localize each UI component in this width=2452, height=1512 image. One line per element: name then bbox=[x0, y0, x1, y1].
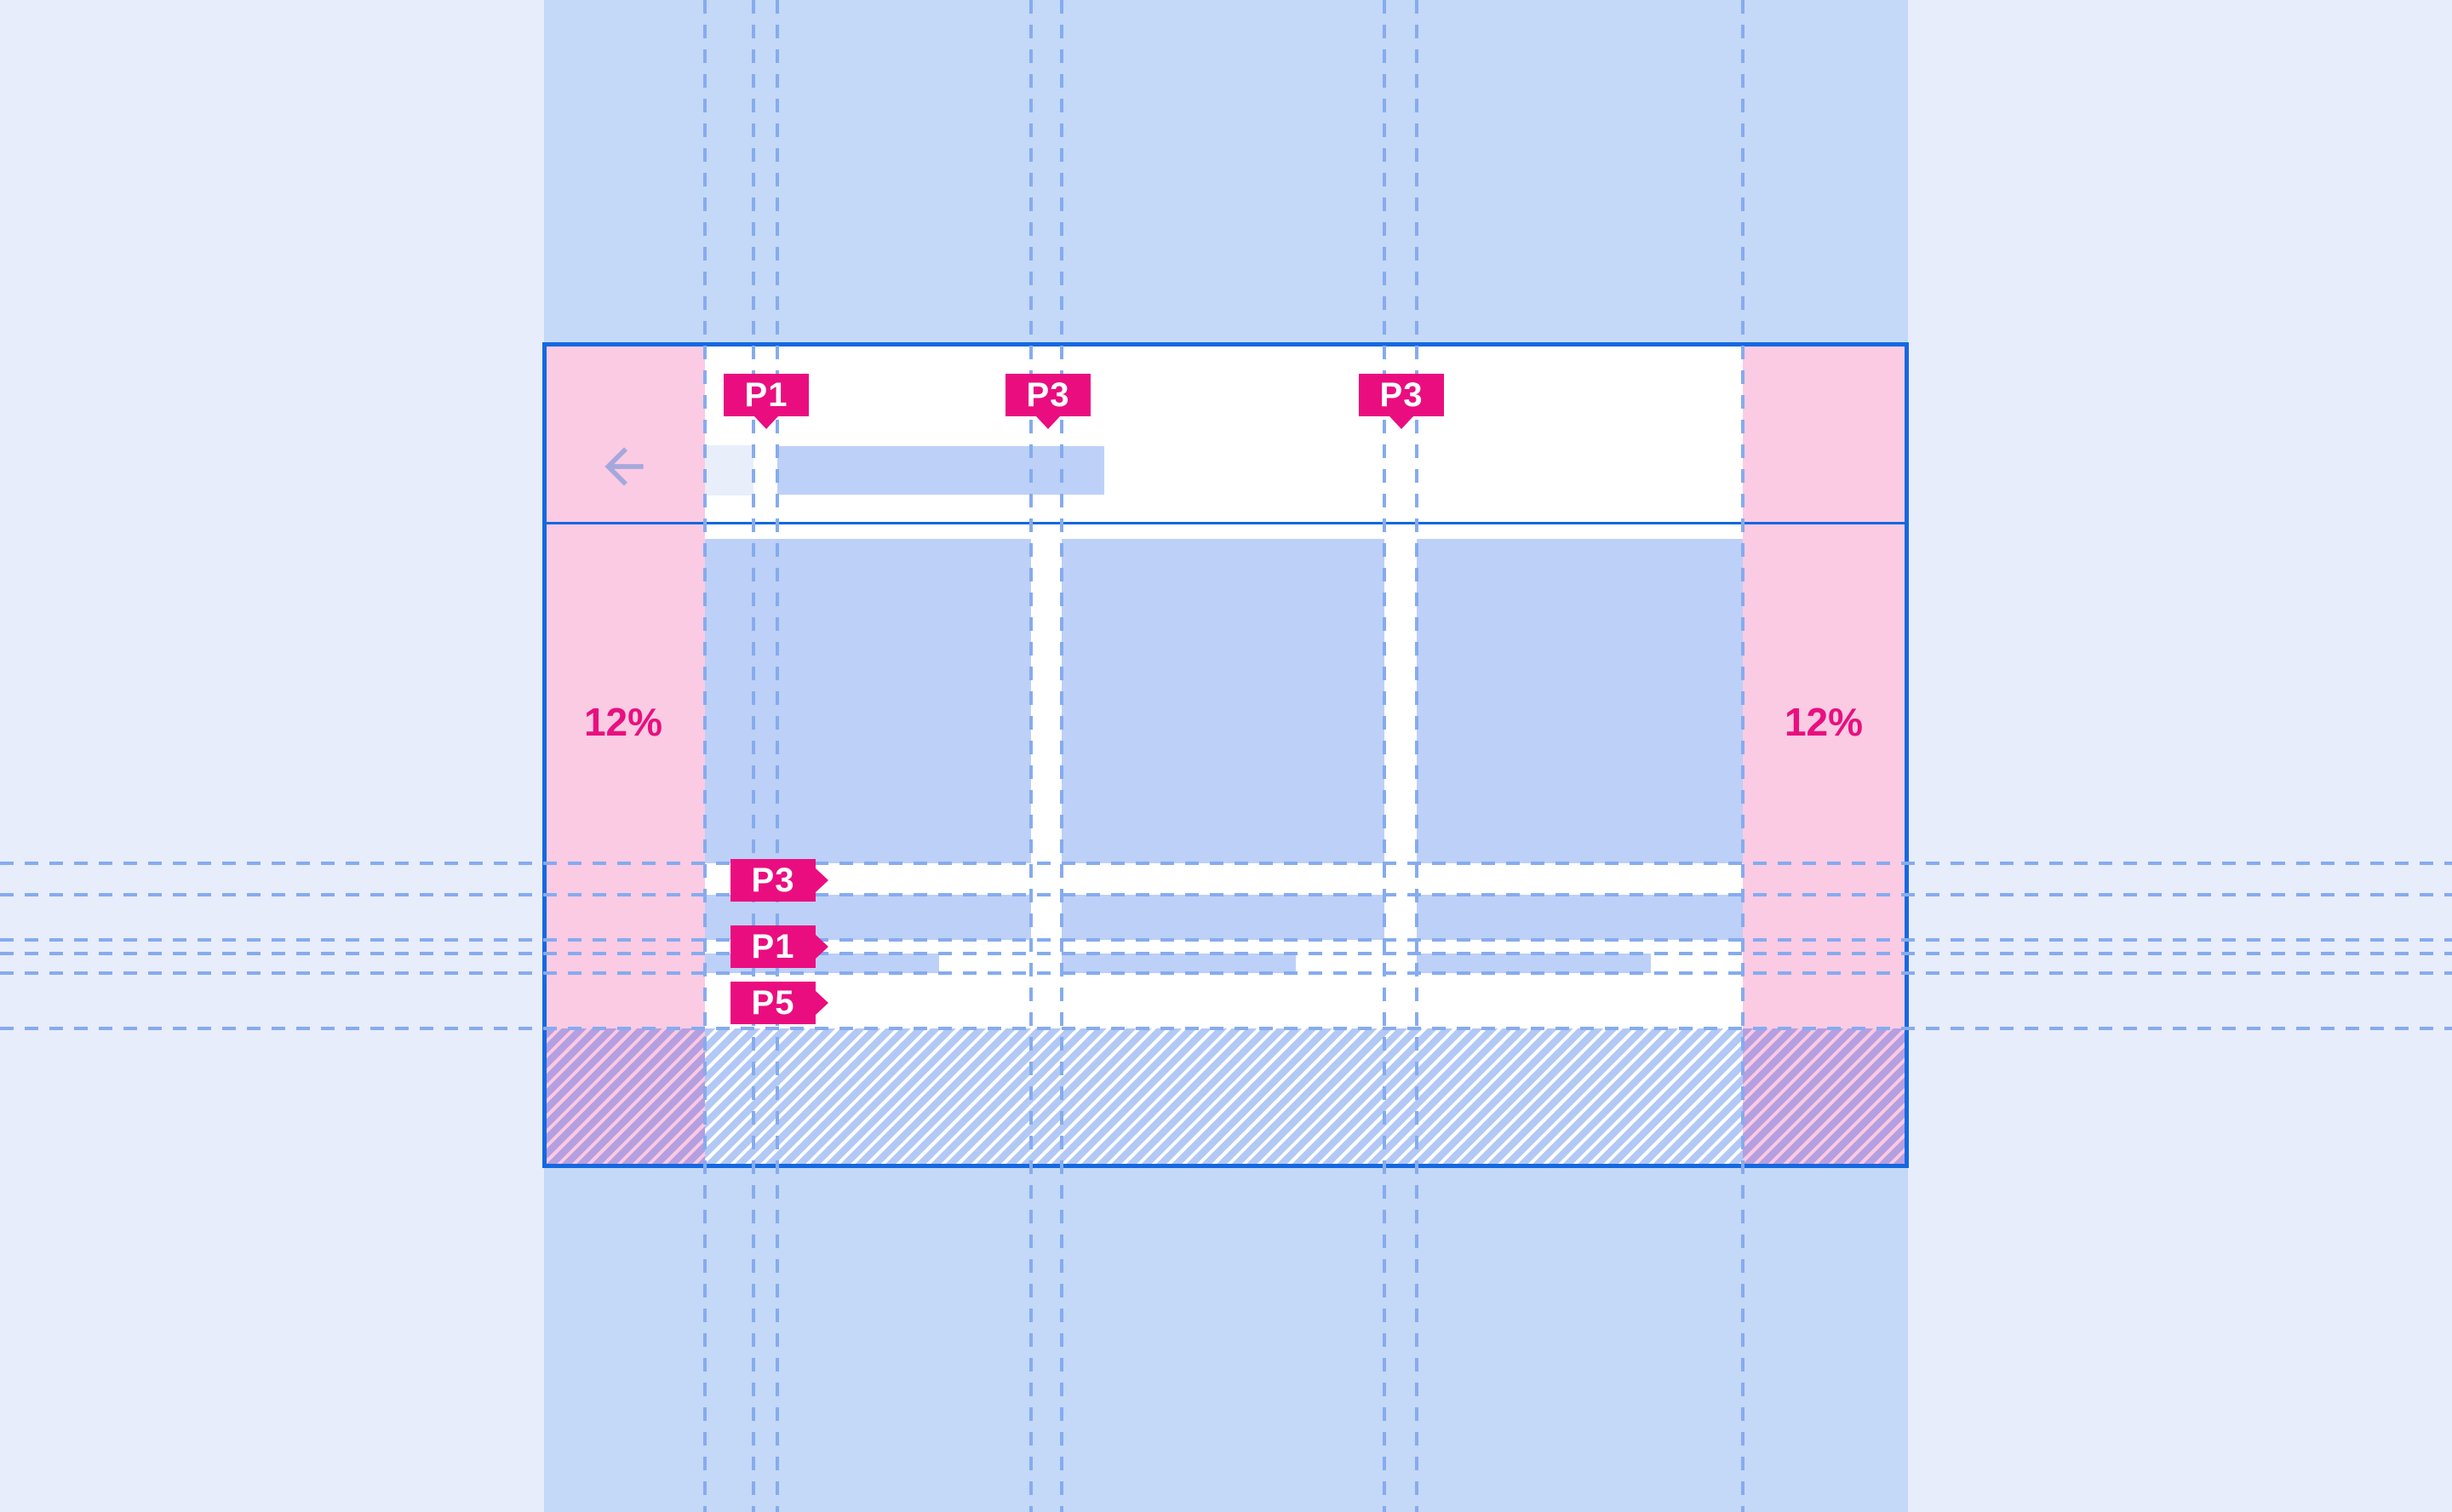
content-card-placeholder bbox=[1417, 539, 1743, 863]
chip-label: P3 bbox=[1027, 376, 1070, 414]
list-row-placeholder bbox=[1417, 895, 1743, 940]
chip-pointer-down bbox=[1389, 416, 1413, 429]
chip-label: P3 bbox=[752, 862, 795, 899]
padding-chip-top-p3-a: P3 bbox=[1005, 374, 1091, 416]
bottom-hatch-left-margin bbox=[547, 1028, 705, 1164]
chip-pointer-right bbox=[816, 935, 828, 959]
list-row-placeholder bbox=[1062, 895, 1384, 940]
layout-spec-canvas: 12% 12% P1 P3 P3 P3 P1 P5 bbox=[0, 0, 2452, 1512]
app-window-frame bbox=[542, 342, 1909, 1168]
chip-label: P1 bbox=[745, 376, 788, 414]
chip-pointer-right bbox=[816, 991, 828, 1015]
padding-chip-side-p3: P3 bbox=[730, 859, 816, 902]
list-subrow-placeholder bbox=[1062, 954, 1296, 973]
chip-pointer-down bbox=[754, 416, 778, 429]
chip-label: P3 bbox=[1380, 376, 1424, 414]
bottom-hatch-right-margin bbox=[1743, 1028, 1905, 1164]
padding-chip-top-p1: P1 bbox=[724, 374, 809, 416]
padding-chip-top-p3-b: P3 bbox=[1359, 374, 1444, 416]
title-placeholder-bar bbox=[777, 446, 1104, 495]
content-card-placeholder bbox=[705, 539, 1031, 863]
icon-spacing-box bbox=[705, 445, 753, 495]
chip-label: P5 bbox=[752, 984, 795, 1022]
padding-chip-side-p5: P5 bbox=[730, 982, 816, 1024]
appbar-divider bbox=[547, 522, 1905, 524]
content-card-placeholder bbox=[1062, 539, 1384, 863]
left-margin-percent-label: 12% bbox=[584, 699, 662, 745]
chip-label: P1 bbox=[752, 928, 795, 965]
padding-chip-side-p1: P1 bbox=[730, 925, 816, 968]
list-subrow-placeholder bbox=[1417, 954, 1651, 973]
back-arrow-icon bbox=[595, 438, 653, 495]
chip-pointer-down bbox=[1036, 416, 1060, 429]
bottom-hatch-area bbox=[705, 1028, 1743, 1164]
right-margin-percent-label: 12% bbox=[1785, 699, 1863, 745]
chip-pointer-right bbox=[816, 868, 828, 892]
